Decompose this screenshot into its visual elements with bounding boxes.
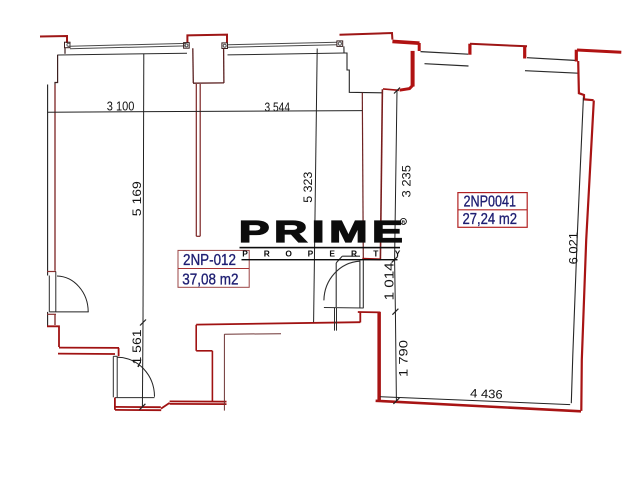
svg-text:E: E (329, 248, 335, 258)
svg-text:1 561: 1 561 (130, 329, 144, 364)
svg-text:3 544: 3 544 (265, 99, 291, 114)
svg-text:R: R (351, 248, 357, 258)
svg-text:1 014: 1 014 (383, 262, 397, 300)
svg-text:5 169: 5 169 (130, 181, 144, 216)
svg-text:37,08 m2: 37,08 m2 (182, 272, 238, 289)
svg-text:O: O (285, 248, 292, 258)
svg-text:P: P (242, 248, 248, 258)
svg-text:2NP0041: 2NP0041 (464, 193, 517, 210)
svg-text:2NP-012: 2NP-012 (183, 252, 236, 269)
svg-text:5 323: 5 323 (301, 171, 315, 202)
svg-text:T: T (373, 248, 379, 258)
svg-text:3 100: 3 100 (107, 98, 135, 113)
svg-text:PRIME: PRIME (239, 214, 408, 249)
svg-text:6 021: 6 021 (567, 232, 581, 265)
svg-text:R: R (402, 220, 406, 226)
svg-text:1 790: 1 790 (397, 340, 411, 377)
svg-text:P: P (308, 248, 314, 258)
svg-text:3 235: 3 235 (399, 165, 413, 198)
svg-text:Y: Y (395, 248, 401, 258)
svg-text:R: R (264, 248, 270, 258)
svg-text:4 436: 4 436 (470, 386, 503, 401)
svg-text:27,24 m2: 27,24 m2 (463, 211, 518, 228)
